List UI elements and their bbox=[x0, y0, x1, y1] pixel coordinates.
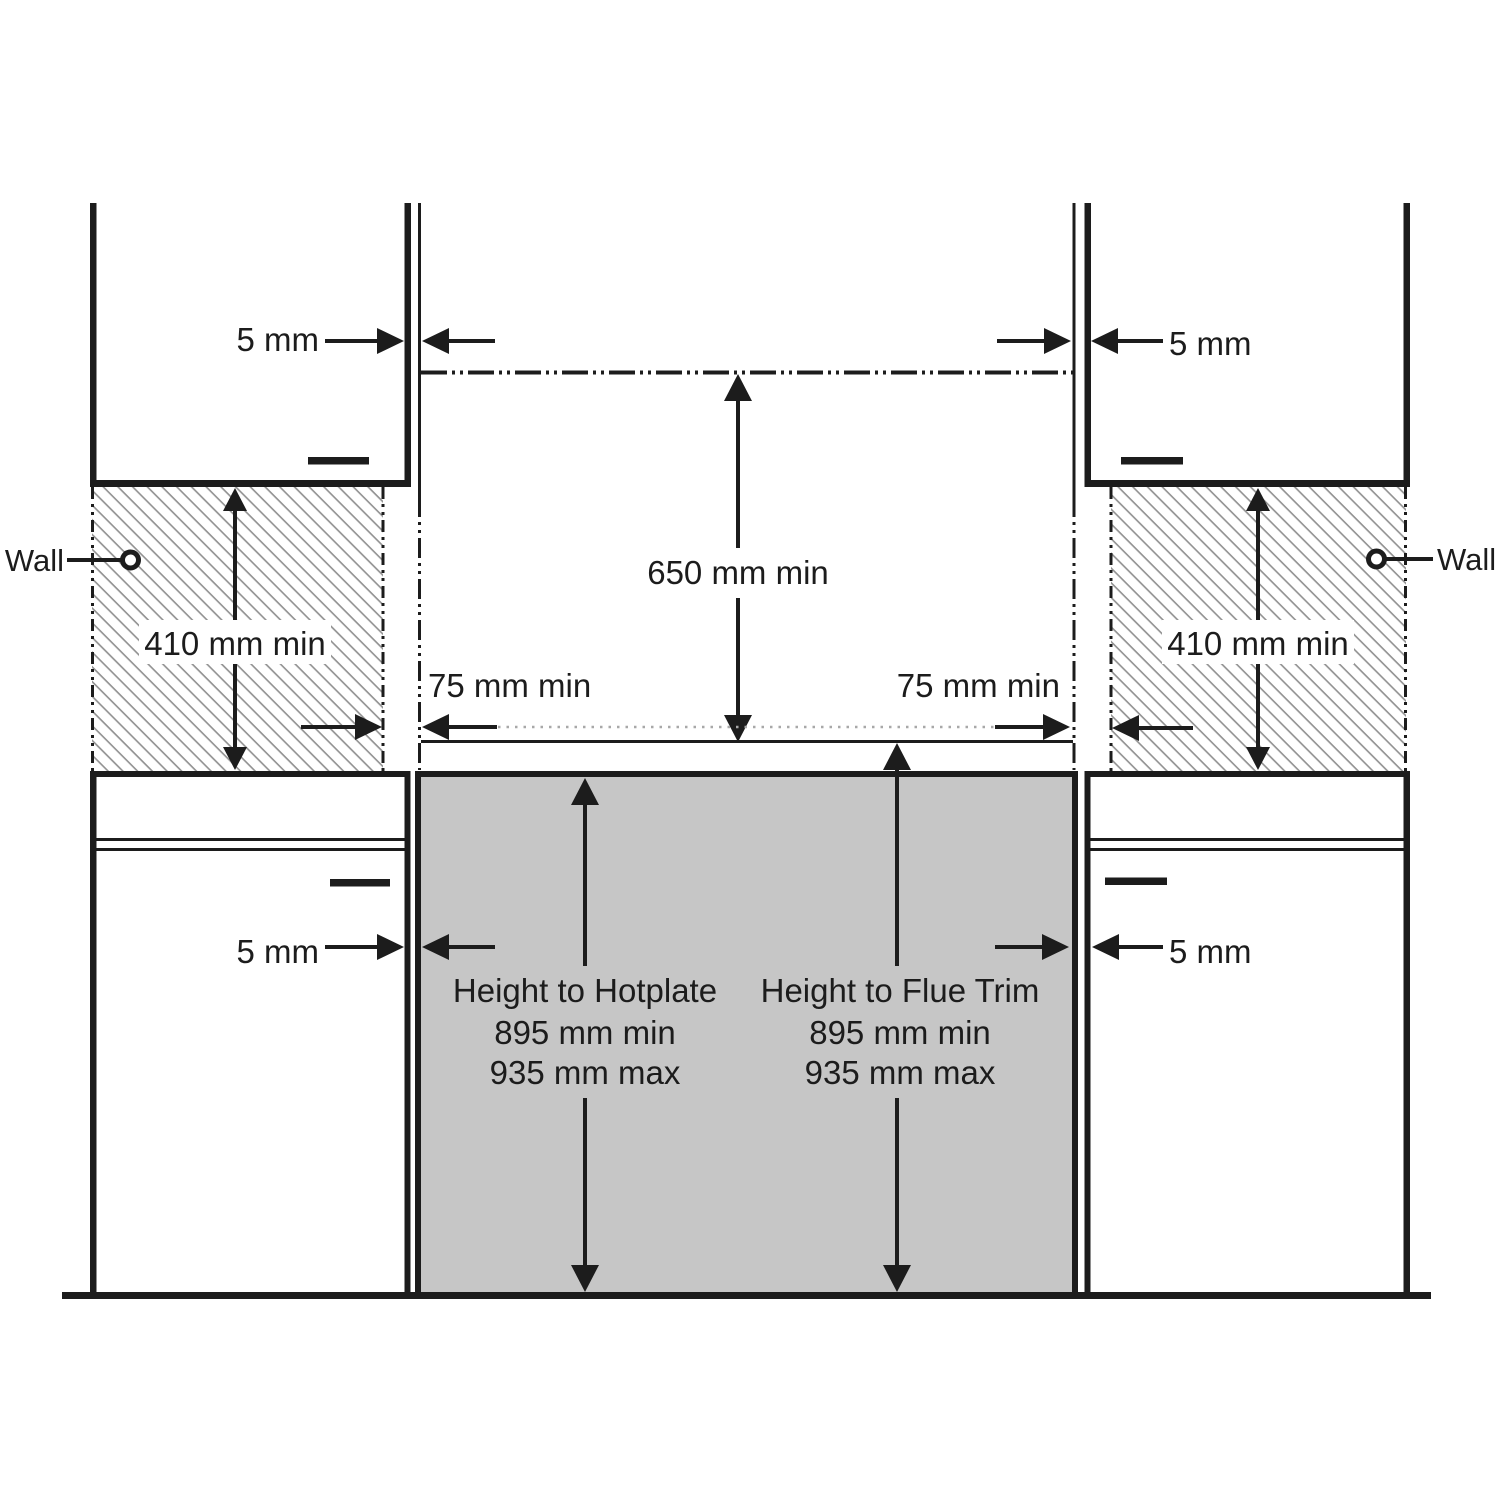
svg-text:5 mm: 5 mm bbox=[237, 321, 320, 358]
svg-text:650 mm min: 650 mm min bbox=[647, 554, 829, 591]
svg-text:Height to Flue Trim: Height to Flue Trim bbox=[761, 972, 1040, 1009]
svg-text:410 mm min: 410 mm min bbox=[144, 625, 326, 662]
svg-text:935 mm max: 935 mm max bbox=[490, 1054, 681, 1091]
svg-text:895 mm min: 895 mm min bbox=[809, 1014, 991, 1051]
svg-text:Height to Hotplate: Height to Hotplate bbox=[453, 972, 717, 1009]
svg-text:410 mm min: 410 mm min bbox=[1167, 625, 1349, 662]
svg-text:5 mm: 5 mm bbox=[1169, 325, 1252, 362]
svg-text:Wall: Wall bbox=[1437, 542, 1496, 577]
svg-text:5 mm: 5 mm bbox=[237, 933, 320, 970]
svg-text:75 mm min: 75 mm min bbox=[428, 667, 591, 704]
svg-text:895 mm min: 895 mm min bbox=[494, 1014, 676, 1051]
svg-text:Wall: Wall bbox=[5, 543, 64, 578]
svg-text:935 mm max: 935 mm max bbox=[805, 1054, 996, 1091]
svg-text:5 mm: 5 mm bbox=[1169, 933, 1252, 970]
svg-text:75 mm min: 75 mm min bbox=[897, 667, 1060, 704]
